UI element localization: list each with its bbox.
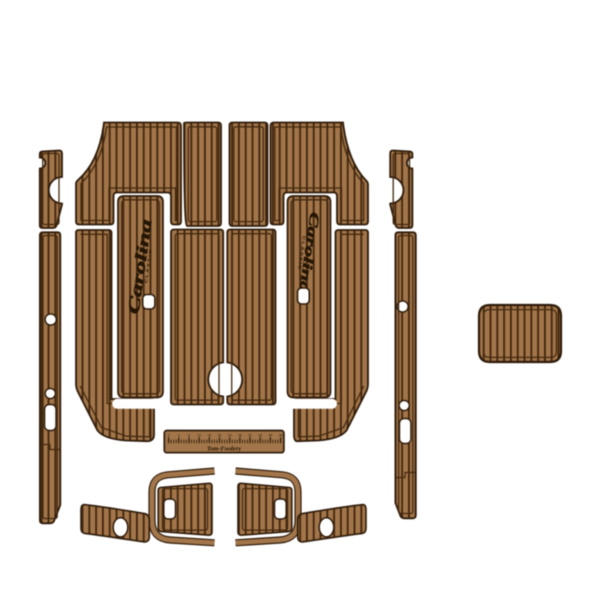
svg-text:Tom-Foolery: Tom-Foolery — [207, 446, 241, 453]
svg-text:4: 4 — [178, 434, 180, 438]
svg-text:0: 0 — [168, 434, 170, 438]
svg-text:24: 24 — [228, 434, 232, 438]
svg-text:28: 28 — [238, 434, 242, 438]
svg-text:8: 8 — [188, 434, 190, 438]
svg-text:40: 40 — [269, 434, 273, 438]
svg-text:20: 20 — [218, 434, 222, 438]
svg-text:36: 36 — [258, 434, 262, 438]
svg-text:44: 44 — [279, 434, 283, 438]
svg-text:16: 16 — [208, 434, 212, 438]
svg-text:12: 12 — [197, 434, 201, 438]
svg-text:32: 32 — [248, 434, 252, 438]
